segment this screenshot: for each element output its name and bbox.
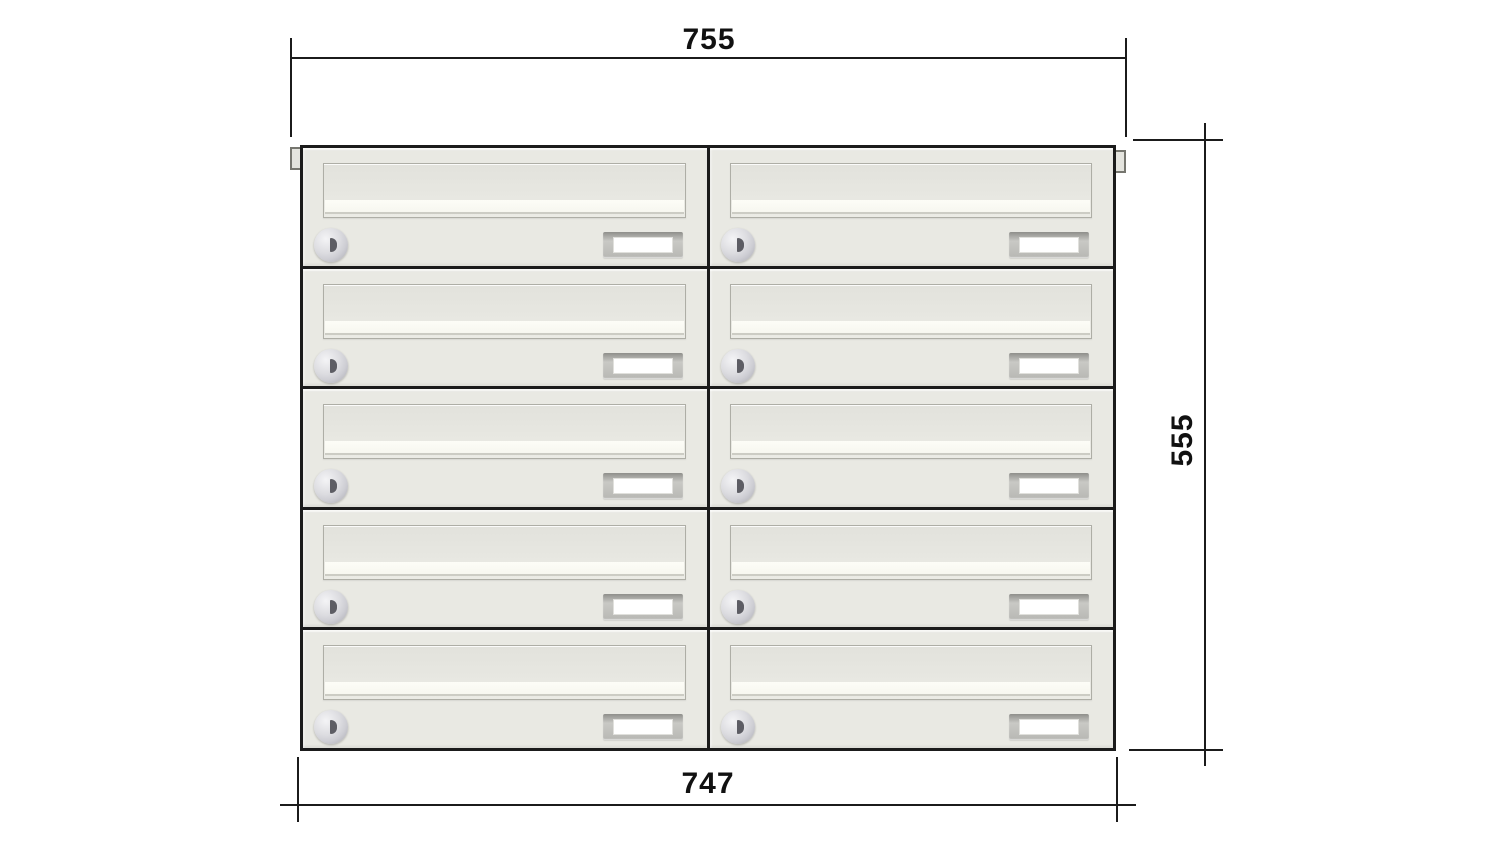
- name-plate: [603, 232, 683, 258]
- extension-line: [1116, 757, 1118, 822]
- keyhole-icon: [737, 238, 744, 252]
- name-plate-window: [613, 237, 673, 253]
- name-plate-window: [613, 478, 673, 494]
- name-plate-window: [613, 599, 673, 615]
- keyhole-icon: [737, 359, 744, 373]
- flap-highlight: [732, 562, 1091, 576]
- flap-highlight: [732, 441, 1091, 455]
- lock-cylinder-icon: [721, 590, 755, 624]
- extension-line: [1129, 749, 1223, 751]
- extension-line: [290, 38, 292, 137]
- keyhole-icon: [330, 600, 337, 614]
- dimension-bottom-label: 747: [298, 768, 1118, 800]
- mailbox-unit: [303, 389, 707, 507]
- letter-flap: [730, 525, 1093, 580]
- flap-highlight: [325, 321, 684, 335]
- lock-cylinder-icon: [314, 228, 348, 262]
- dimension-line: [1204, 123, 1206, 766]
- mailbox-unit: [710, 269, 1114, 387]
- lock-cylinder-icon: [314, 469, 348, 503]
- name-plate: [603, 714, 683, 740]
- letter-flap: [730, 645, 1093, 700]
- letter-flap: [730, 404, 1093, 459]
- flap-highlight: [325, 441, 684, 455]
- flap-highlight: [732, 321, 1091, 335]
- name-plate: [1009, 594, 1089, 620]
- flap-highlight: [325, 562, 684, 576]
- mailbox-unit: [303, 510, 707, 628]
- mailbox-unit: [303, 148, 707, 266]
- name-plate: [603, 594, 683, 620]
- keyhole-icon: [330, 479, 337, 493]
- letter-flap: [730, 284, 1093, 339]
- name-plate: [1009, 232, 1089, 258]
- letter-flap: [323, 284, 686, 339]
- lock-cylinder-icon: [721, 228, 755, 262]
- dimension-line: [280, 804, 1136, 806]
- extension-line: [1133, 139, 1223, 141]
- dimension-line: [291, 57, 1127, 59]
- flap-highlight: [732, 200, 1091, 214]
- name-plate: [1009, 473, 1089, 499]
- name-plate: [1009, 714, 1089, 740]
- keyhole-icon: [737, 479, 744, 493]
- name-plate-window: [613, 358, 673, 374]
- letter-flap: [323, 404, 686, 459]
- mailbox-unit: [710, 389, 1114, 507]
- keyhole-icon: [330, 359, 337, 373]
- dimension-top-label: 755: [291, 24, 1127, 56]
- mailbox-unit: [710, 148, 1114, 266]
- name-plate-window: [613, 719, 673, 735]
- name-plate: [603, 353, 683, 379]
- letter-flap: [323, 645, 686, 700]
- letter-flap: [730, 163, 1093, 218]
- lock-cylinder-icon: [721, 349, 755, 383]
- name-plate: [1009, 353, 1089, 379]
- name-plate-window: [1019, 599, 1079, 615]
- name-plate-window: [1019, 719, 1079, 735]
- letter-flap: [323, 163, 686, 218]
- keyhole-icon: [330, 720, 337, 734]
- mailbox-cabinet: [300, 145, 1116, 751]
- lock-cylinder-icon: [314, 349, 348, 383]
- mailbox-unit: [303, 630, 707, 748]
- name-plate-window: [1019, 358, 1079, 374]
- extension-line: [297, 757, 299, 822]
- lock-cylinder-icon: [314, 710, 348, 744]
- name-plate-window: [1019, 478, 1079, 494]
- mailbox-unit: [303, 269, 707, 387]
- lock-cylinder-icon: [721, 710, 755, 744]
- flap-highlight: [732, 682, 1091, 696]
- extension-line: [1125, 38, 1127, 137]
- letter-flap: [323, 525, 686, 580]
- mailbox-unit: [710, 630, 1114, 748]
- name-plate: [603, 473, 683, 499]
- keyhole-icon: [330, 238, 337, 252]
- keyhole-icon: [737, 720, 744, 734]
- name-plate-window: [1019, 237, 1079, 253]
- keyhole-icon: [737, 600, 744, 614]
- mailbox-unit: [710, 510, 1114, 628]
- technical-drawing-canvas: 755 555 747: [0, 0, 1500, 856]
- dimension-right-label: 555: [1167, 365, 1199, 515]
- lock-cylinder-icon: [721, 469, 755, 503]
- flap-highlight: [325, 682, 684, 696]
- flap-highlight: [325, 200, 684, 214]
- lock-cylinder-icon: [314, 590, 348, 624]
